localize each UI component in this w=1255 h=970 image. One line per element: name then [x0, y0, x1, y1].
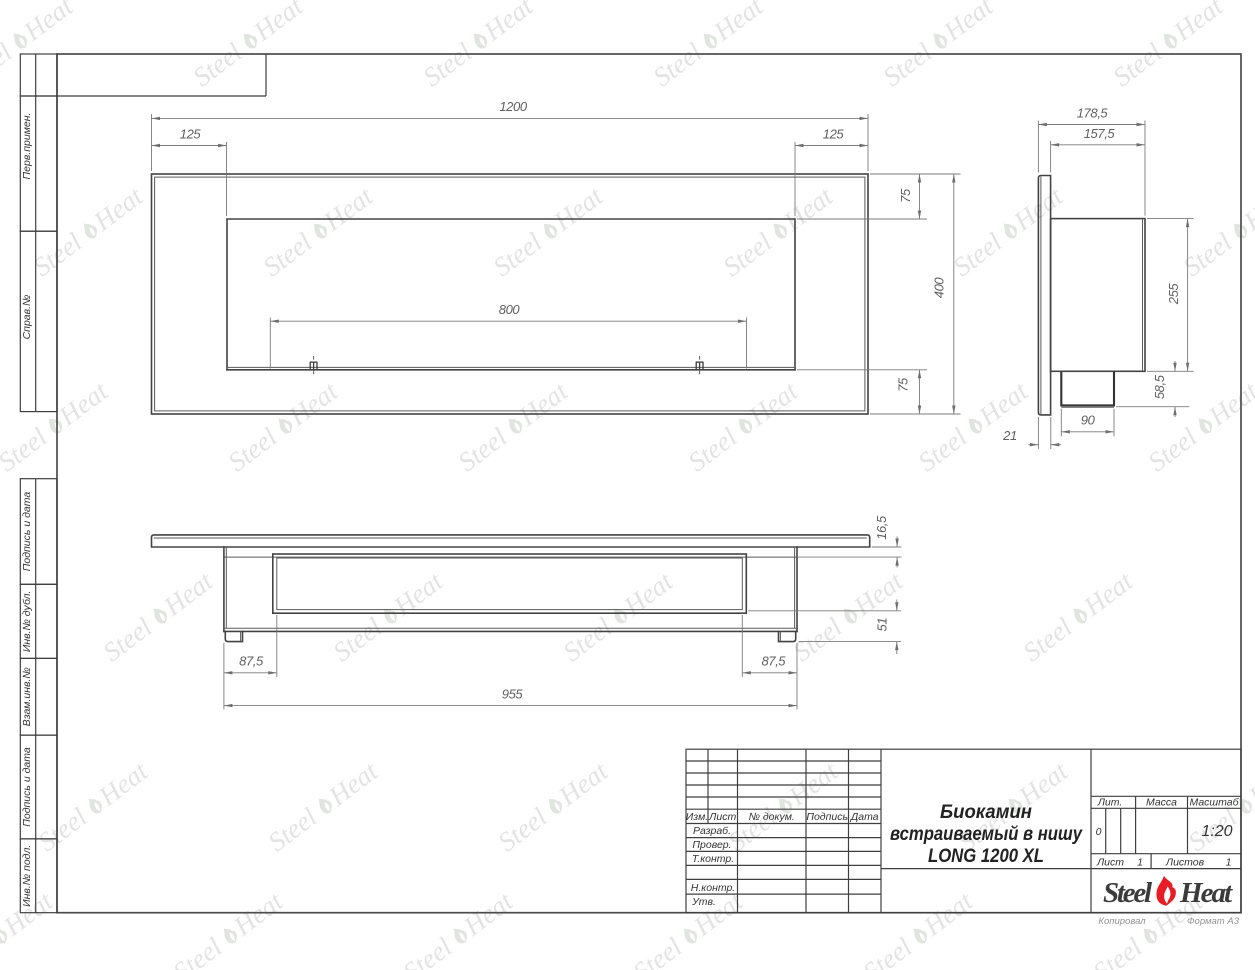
svg-text:Перв.примен.: Перв.примен. — [21, 113, 33, 180]
svg-text:21: 21 — [1002, 428, 1017, 443]
svg-text:Масса: Масса — [1146, 797, 1177, 809]
svg-text:Дата: Дата — [850, 811, 879, 823]
svg-text:Подпись: Подпись — [806, 811, 848, 823]
svg-text:Н.контр.: Н.контр. — [691, 882, 735, 894]
svg-text:Heat: Heat — [1179, 877, 1233, 909]
svg-text:125: 125 — [180, 127, 202, 142]
svg-text:75: 75 — [898, 188, 913, 203]
svg-text:955: 955 — [502, 687, 524, 702]
svg-text:Т.контр.: Т.контр. — [692, 853, 734, 865]
svg-text:51: 51 — [874, 618, 889, 632]
svg-text:Инв.№ дубл.: Инв.№ дубл. — [21, 591, 33, 653]
svg-text:Подпись и дата: Подпись и дата — [21, 747, 33, 827]
svg-text:16,5: 16,5 — [874, 515, 889, 540]
svg-text:1:20: 1:20 — [1201, 823, 1232, 840]
svg-text:90: 90 — [1081, 412, 1096, 427]
svg-text:Подпись и дата: Подпись и дата — [21, 492, 33, 572]
svg-text:255: 255 — [1166, 283, 1181, 306]
svg-text:Инв.№ подл.: Инв.№ подл. — [21, 845, 33, 907]
svg-text:Изм.: Изм. — [686, 811, 708, 823]
svg-text:Лист: Лист — [708, 811, 736, 823]
svg-text:№ докум.: № докум. — [749, 811, 795, 823]
svg-text:Взам.инв.№: Взам.инв.№ — [21, 667, 33, 726]
svg-text:157,5: 157,5 — [1084, 126, 1116, 141]
svg-text:Формат А3: Формат А3 — [1187, 916, 1240, 927]
svg-text:Масштаб: Масштаб — [1189, 797, 1239, 809]
svg-text:Биокамин: Биокамин — [940, 802, 1033, 823]
svg-text:1: 1 — [1226, 857, 1232, 869]
svg-text:Справ.№: Справ.№ — [21, 295, 33, 340]
svg-text:400: 400 — [932, 277, 947, 299]
svg-text:Листов: Листов — [1165, 857, 1205, 869]
svg-text:87,5: 87,5 — [239, 654, 264, 669]
svg-text:800: 800 — [499, 302, 521, 317]
svg-text:Утв.: Утв. — [691, 896, 716, 908]
svg-text:0: 0 — [1096, 826, 1102, 838]
svg-text:Разраб.: Разраб. — [693, 825, 731, 837]
svg-text:87,5: 87,5 — [761, 654, 786, 669]
svg-text:75: 75 — [896, 377, 911, 392]
svg-text:125: 125 — [823, 127, 845, 142]
svg-text:Лист: Лист — [1096, 857, 1124, 869]
svg-text:Копировал: Копировал — [1098, 916, 1146, 927]
svg-text:178,5: 178,5 — [1077, 106, 1109, 121]
svg-text:58,5: 58,5 — [1152, 374, 1167, 399]
svg-text:1: 1 — [1137, 857, 1143, 869]
svg-text:Лит.: Лит. — [1097, 797, 1123, 809]
svg-text:Провер.: Провер. — [692, 839, 731, 851]
svg-text:встраиваемый в нишу: встраиваемый в нишу — [890, 824, 1083, 845]
svg-text:LONG 1200 XL: LONG 1200 XL — [928, 846, 1044, 867]
svg-text:1200: 1200 — [499, 99, 527, 114]
svg-text:Steel: Steel — [1103, 877, 1153, 909]
